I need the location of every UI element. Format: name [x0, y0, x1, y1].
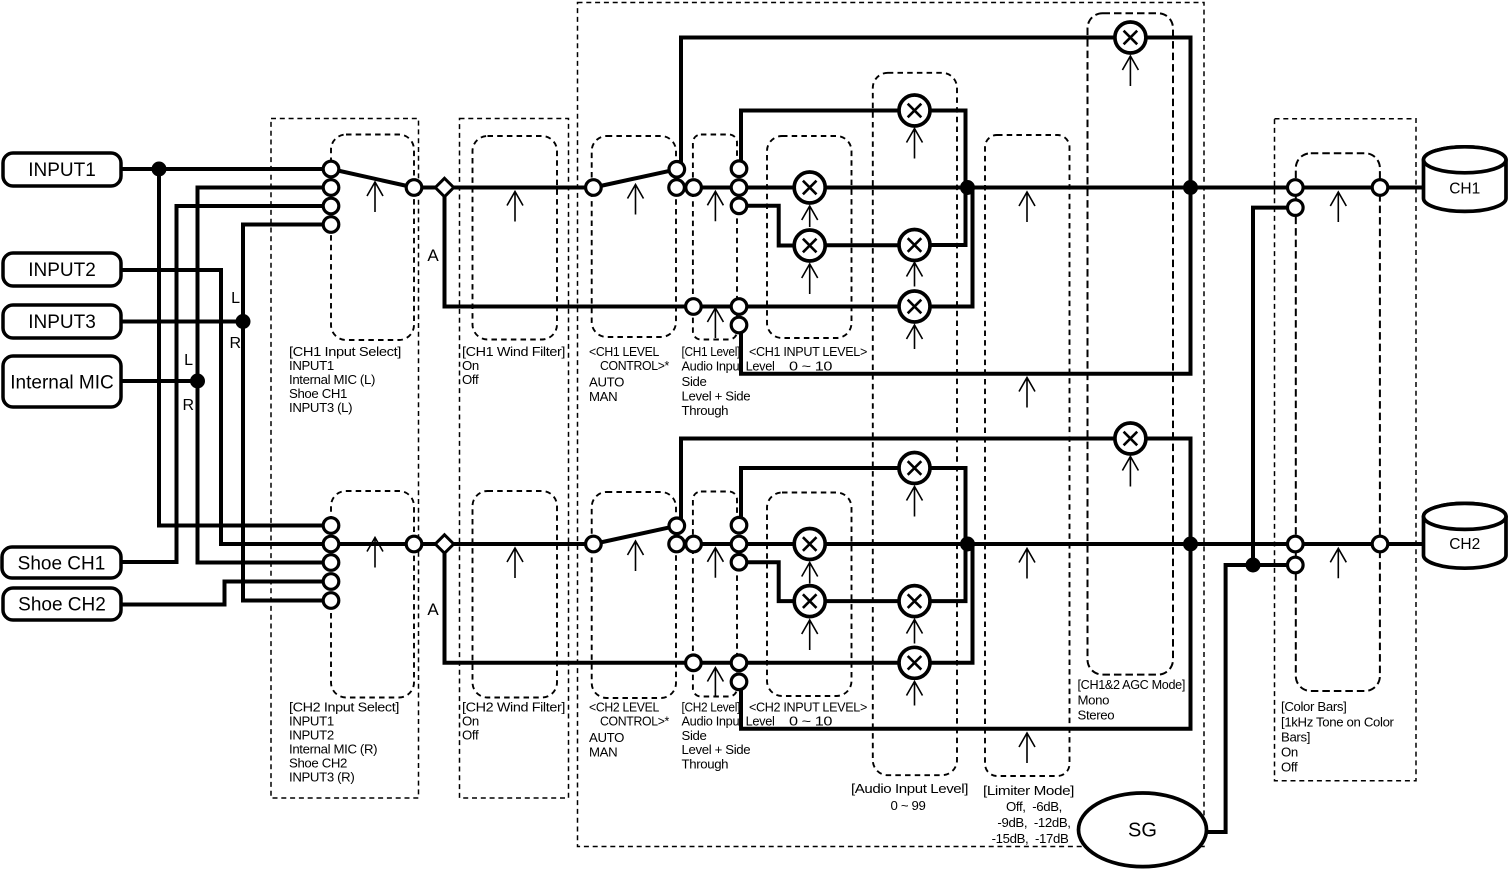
svg-text:L: L	[184, 352, 193, 369]
svg-text:R: R	[229, 335, 241, 352]
svg-text:INPUT3: INPUT3	[28, 312, 96, 333]
svg-text:A: A	[427, 246, 439, 265]
svg-text:Internal MIC: Internal MIC	[10, 373, 113, 394]
svg-text:INPUT1: INPUT1	[28, 160, 96, 181]
svg-text:R: R	[182, 397, 194, 414]
svg-text:<CH2 INPUT LEVEL>: <CH2 INPUT LEVEL>	[749, 700, 868, 715]
svg-text:INPUT2: INPUT2	[28, 260, 96, 281]
svg-text:<CH1 INPUT LEVEL>: <CH1 INPUT LEVEL>	[749, 344, 868, 359]
svg-text:SG: SG	[1128, 820, 1157, 842]
svg-text:CH2: CH2	[1449, 536, 1480, 553]
svg-text:A: A	[427, 600, 439, 619]
svg-text:0 ~ 10: 0 ~ 10	[789, 359, 832, 374]
svg-text:Shoe CH2: Shoe CH2	[18, 595, 106, 616]
svg-text:[Limiter Mode]Off, -6dB,-9dB,: [Limiter Mode]Off, -6dB,-9dB, -12dB,-15d…	[983, 783, 1074, 846]
svg-text:0 ~ 10: 0 ~ 10	[789, 714, 832, 729]
svg-text:CH1: CH1	[1449, 181, 1480, 198]
svg-text:Shoe CH1: Shoe CH1	[18, 554, 106, 575]
svg-text:L: L	[231, 290, 240, 307]
